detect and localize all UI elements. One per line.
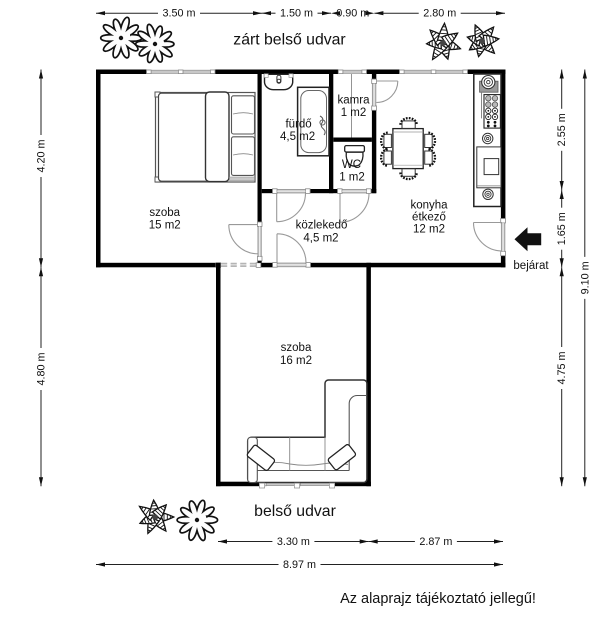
svg-text:4,5 m2: 4,5 m2 <box>280 131 315 143</box>
svg-text:zárt belső udvar: zárt belső udvar <box>233 32 345 49</box>
svg-text:fürdő: fürdő <box>285 119 311 131</box>
svg-text:étkező: étkező <box>412 212 446 224</box>
svg-text:1 m2: 1 m2 <box>339 172 365 184</box>
svg-text:3.50 m: 3.50 m <box>162 8 195 20</box>
svg-text:3.30 m: 3.30 m <box>277 536 310 548</box>
svg-text:0.90 m: 0.90 m <box>336 8 369 20</box>
svg-text:1.65 m: 1.65 m <box>556 212 568 245</box>
svg-text:4.75 m: 4.75 m <box>556 351 568 384</box>
svg-text:szoba: szoba <box>281 342 312 354</box>
svg-text:WC: WC <box>342 159 361 171</box>
svg-text:2.80 m: 2.80 m <box>423 8 456 20</box>
svg-text:belső udvar: belső udvar <box>254 503 336 520</box>
svg-text:bejárat: bejárat <box>513 260 549 272</box>
svg-text:2.87 m: 2.87 m <box>419 536 452 548</box>
svg-text:Az alaprajz tájékoztató jelleg: Az alaprajz tájékoztató jellegű! <box>340 591 536 607</box>
svg-text:1.50 m: 1.50 m <box>280 8 313 20</box>
svg-text:15 m2: 15 m2 <box>149 220 181 232</box>
svg-text:1 m2: 1 m2 <box>341 107 367 119</box>
svg-text:konyha: konyha <box>410 200 448 212</box>
svg-text:9.10 m: 9.10 m <box>579 261 591 294</box>
svg-text:szoba: szoba <box>149 207 180 219</box>
svg-text:4,5 m2: 4,5 m2 <box>303 233 338 245</box>
svg-text:kamra: kamra <box>338 95 371 107</box>
svg-text:4.20 m: 4.20 m <box>36 139 48 172</box>
svg-text:12 m2: 12 m2 <box>413 224 445 236</box>
svg-text:4.80 m: 4.80 m <box>36 352 48 385</box>
svg-text:8.97 m: 8.97 m <box>283 559 316 571</box>
svg-text:2.55 m: 2.55 m <box>556 113 568 146</box>
svg-text:közlekedő: közlekedő <box>296 220 348 232</box>
svg-text:16 m2: 16 m2 <box>280 355 312 367</box>
